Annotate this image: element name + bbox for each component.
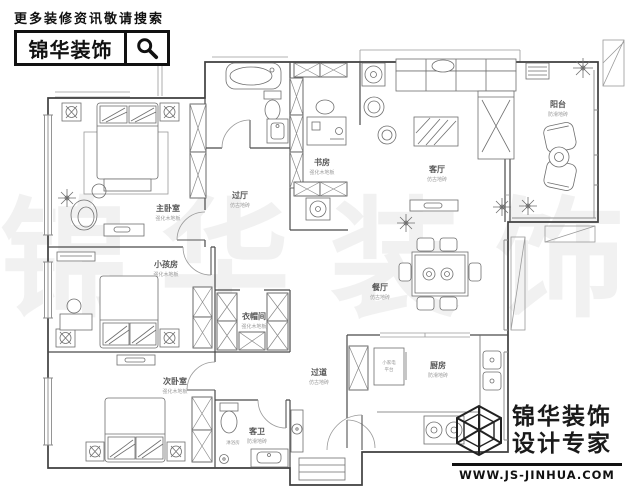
- svg-text:衣帽间: 衣帽间: [242, 311, 266, 321]
- island-cabinet: 小家电 平台: [374, 348, 406, 385]
- svg-text:书房: 书房: [314, 157, 330, 167]
- dining-table: [412, 252, 468, 296]
- chair: [469, 263, 481, 281]
- label-guest-bath: 客卫防滑地砖: [247, 426, 267, 445]
- svg-text:仿古地砖: 仿古地砖: [309, 379, 329, 386]
- side-table: [362, 63, 385, 86]
- cube-logo-icon: [452, 402, 506, 460]
- company-logo-block: 锦华装饰 设计专家 WWW.JS-JINHUA.COM: [452, 402, 622, 482]
- watermark-char: 饰: [495, 184, 625, 336]
- chair: [417, 238, 434, 251]
- study-cabinet: [320, 63, 347, 77]
- chair: [440, 297, 457, 310]
- nightstand: [167, 442, 185, 461]
- svg-text:防滑地砖: 防滑地砖: [548, 111, 568, 118]
- wardrobe: [190, 104, 206, 152]
- vanity: [251, 449, 288, 467]
- label-dining-room: 餐厅仿古地砖: [370, 282, 390, 301]
- footer-brand: 锦华装饰: [512, 404, 612, 431]
- door-kitchen: [347, 420, 375, 448]
- shower-note: 淋浴房: [226, 439, 240, 446]
- label-living-room: 客厅仿古地砖: [427, 164, 447, 183]
- wardrobe: [193, 287, 212, 317]
- label-balcony: 阳台防滑地砖: [548, 99, 568, 118]
- entry-area: [291, 410, 345, 480]
- wardrobe: [190, 152, 206, 198]
- svg-text:厨房: 厨房: [430, 360, 446, 370]
- svg-text:主卧室: 主卧室: [156, 203, 180, 213]
- svg-text:防滑地砖: 防滑地砖: [247, 438, 267, 445]
- svg-text:过道: 过道: [311, 367, 327, 377]
- door-second-bedroom: [187, 362, 215, 390]
- label-hall: 过厅仿古地砖: [230, 190, 250, 209]
- bed-master: [97, 103, 158, 191]
- washing-machine: [306, 198, 330, 220]
- ac-cabinet: [526, 63, 549, 79]
- second-bedroom-furniture: [86, 355, 185, 462]
- label-kids-room: 小孩房强化木地板: [153, 259, 179, 278]
- label-cloakroom: 衣帽间强化木地板: [241, 311, 266, 330]
- shelf: [117, 355, 155, 365]
- study-cabinet: [294, 63, 320, 77]
- cloakroom-wardrobe: [217, 293, 237, 321]
- brand-search-box[interactable]: 锦华装饰: [14, 30, 170, 66]
- door-guest-bath: [258, 400, 286, 428]
- tv-cabinet: [410, 200, 458, 211]
- door-master-bath: [222, 120, 250, 148]
- svg-text:次卧室: 次卧室: [163, 376, 187, 386]
- svg-text:仿古地砖: 仿古地砖: [230, 202, 250, 209]
- toilet: [264, 91, 281, 120]
- footer-tagline: 设计专家: [512, 431, 612, 458]
- study-bookcase: [290, 78, 303, 115]
- study-cabinet: [320, 182, 347, 196]
- round-chair: [364, 97, 384, 117]
- bed-second: [105, 398, 165, 462]
- svg-text:过厅: 过厅: [232, 190, 248, 200]
- window: [43, 262, 53, 318]
- nightstand: [160, 103, 179, 121]
- svg-text:强化木地板: 强化木地板: [153, 271, 178, 278]
- svg-text:客卫: 客卫: [248, 426, 265, 436]
- brand-name: 锦华装饰: [17, 33, 124, 63]
- doormat: [299, 458, 345, 480]
- round-chair: [378, 126, 396, 144]
- search-icon[interactable]: [124, 33, 167, 63]
- ac-platform: [603, 40, 624, 86]
- footer-url: WWW.JS-JINHUA.COM: [452, 468, 622, 482]
- toilet: [220, 403, 238, 433]
- label-study: 书房强化木地板: [309, 157, 334, 176]
- label-master-bedroom: 主卧室强化木地板: [155, 203, 180, 222]
- washbasin: [267, 119, 288, 143]
- window: [43, 378, 53, 445]
- svg-text:仿古地砖: 仿古地砖: [427, 176, 447, 183]
- label-corridor: 过道仿古地砖: [309, 367, 329, 386]
- svg-text:仿古地砖: 仿古地砖: [370, 294, 390, 301]
- svg-text:小孩房: 小孩房: [153, 259, 178, 269]
- bathtub: [226, 63, 281, 89]
- nightstand: [56, 329, 75, 347]
- cloakroom-wardrobe: [267, 293, 288, 321]
- svg-text:客厅: 客厅: [428, 164, 445, 174]
- tv-cabinet: [104, 224, 144, 236]
- nightstand: [86, 442, 104, 461]
- svg-text:强化木地板: 强化木地板: [309, 169, 334, 176]
- desk: [307, 100, 346, 145]
- floorplan-page: 锦 华 装 饰: [0, 0, 625, 500]
- nightstand: [160, 329, 179, 347]
- island-note: 小家电: [382, 359, 396, 366]
- svg-text:阳台: 阳台: [550, 99, 566, 109]
- study-bookcase: [290, 115, 303, 152]
- wardrobe: [192, 397, 212, 430]
- bed-kids: [100, 276, 158, 348]
- svg-text:强化木地板: 强化木地板: [155, 215, 180, 222]
- chair: [399, 263, 411, 281]
- door-entry: [327, 415, 362, 450]
- shower-drain: [220, 455, 229, 464]
- label-second-bedroom: 次卧室强化木地板: [162, 376, 187, 395]
- round-table: [549, 147, 569, 167]
- duct: [291, 410, 303, 452]
- svg-text:强化木地板: 强化木地板: [162, 388, 187, 395]
- wardrobe: [192, 430, 212, 462]
- cloakroom-wardrobe: [267, 321, 288, 350]
- svg-text:强化木地板: 强化木地板: [241, 323, 266, 330]
- plant-icon: [573, 58, 593, 78]
- fridge: [349, 346, 368, 390]
- search-banner: 更多装修资讯敬请搜索 锦华装饰: [14, 8, 170, 66]
- cloakroom-wardrobe: [239, 332, 265, 350]
- balcony-furniture: [526, 63, 578, 192]
- shelf: [57, 252, 95, 261]
- label-kitchen: 厨房防滑地砖: [428, 360, 448, 379]
- sink: [483, 351, 501, 390]
- island-note: 平台: [385, 366, 394, 373]
- wardrobe: [193, 317, 212, 348]
- chair: [440, 238, 457, 251]
- footer-divider: [452, 463, 622, 466]
- nightstand: [62, 103, 81, 121]
- promo-text: 更多装修资讯敬请搜索: [14, 8, 170, 27]
- coffee-table: [414, 117, 458, 146]
- master-bath-fixtures: [226, 63, 288, 143]
- chair: [417, 297, 434, 310]
- svg-text:防滑地砖: 防滑地砖: [428, 372, 448, 379]
- window: [43, 115, 53, 235]
- study-cabinet: [294, 182, 320, 196]
- svg-text:餐厅: 餐厅: [371, 282, 388, 292]
- cloakroom-wardrobe: [217, 321, 237, 350]
